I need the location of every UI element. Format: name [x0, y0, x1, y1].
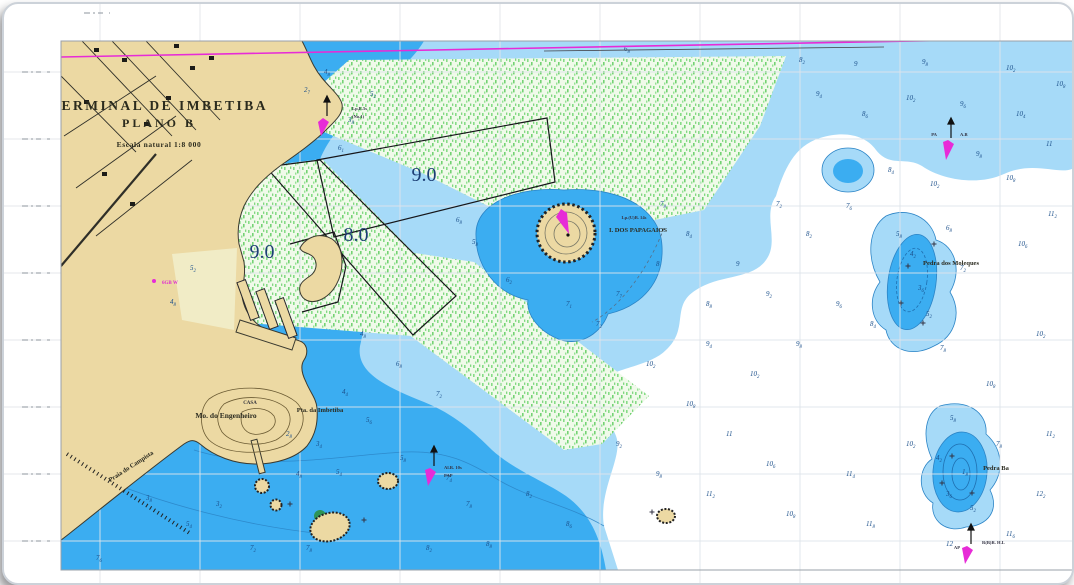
sounding: 8 [656, 260, 660, 268]
label-beacon-ap2: R(B)R. H.L [982, 540, 1005, 545]
label-pta-imbetiba: Pta. da Imbetiba [297, 407, 344, 414]
harbor-light-icon [152, 279, 156, 283]
sand-flat [172, 248, 237, 330]
label-engenheiro: Mo. do Engenheiro [195, 411, 257, 420]
depth-area-label: 8.0 [344, 224, 369, 246]
sounding: 11 [726, 430, 732, 438]
sounding: 9 [736, 260, 740, 268]
label-papagaios: I. DOS PAPAGAIOS [609, 227, 667, 234]
chart-scale: Escala natural 1:8 000 [117, 140, 202, 149]
sounding: 9 [854, 60, 858, 68]
label-harbor-light: 6GB W [162, 281, 178, 286]
sounding: 11 [1046, 140, 1052, 148]
chart-title: TERMINAL DE IMBETIBA [50, 98, 268, 113]
label-papagaios-light: Lp.(U)B. 14s [622, 215, 647, 220]
sounding: 12 [946, 540, 954, 548]
nautical-chart: 4852273861688299810210894861029610411988… [4, 4, 1074, 585]
label-beacon-ap: AP [954, 545, 960, 550]
chart-card: 4852273861688299810210894861029610411988… [2, 2, 1074, 585]
label-moleques: Pedra dos Moleques [923, 260, 979, 267]
label-buoy-ab: A.B [960, 132, 968, 137]
papagaios-island [537, 204, 595, 262]
label-buoy-pa: PA [931, 132, 937, 137]
chart-subtitle: PLANO B [122, 116, 196, 130]
label-beacon-pap2: PAP [444, 473, 453, 478]
label-beacon-pap1: Al.R. 10s [444, 465, 462, 470]
depth-area-label: 9.0 [250, 241, 275, 263]
label-buoy-no1: Lp.E.5s [352, 106, 367, 111]
label-casa: CASA [243, 401, 257, 406]
depth-area-label: 9.0 [412, 164, 437, 186]
label-pedra: Pedra Ba [983, 465, 1010, 472]
label-buoy-no1-no: (No.1) [352, 114, 365, 119]
